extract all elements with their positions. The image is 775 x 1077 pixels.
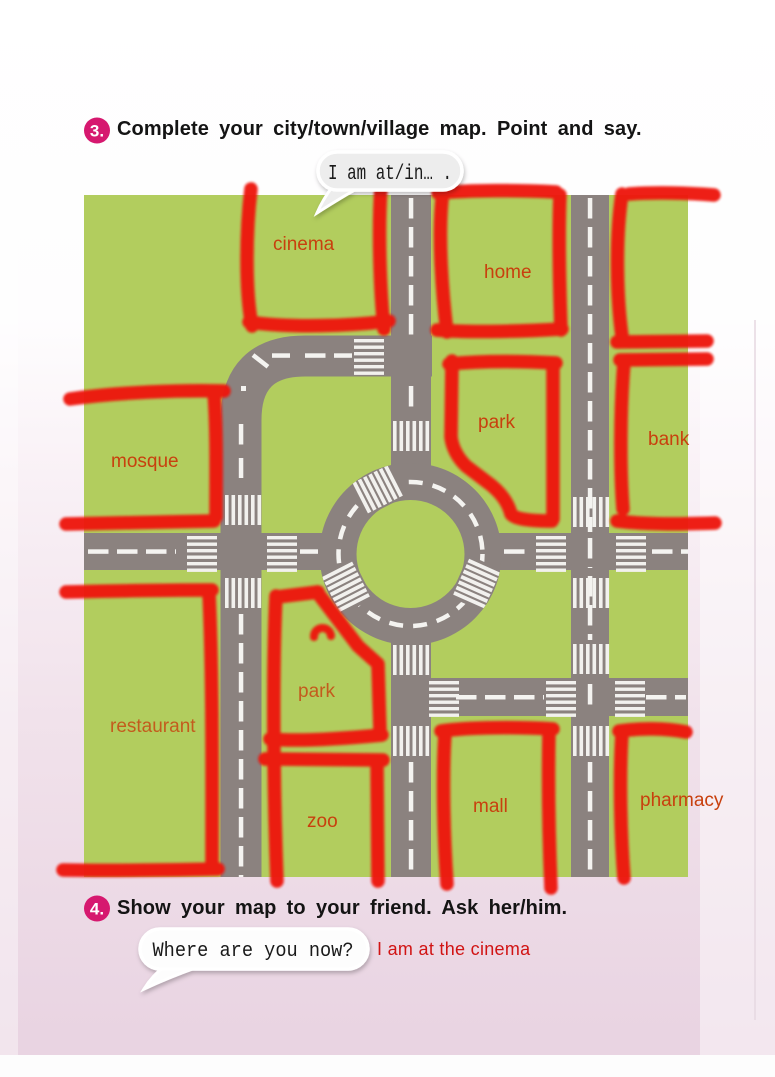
svg-text:Where are you now?: Where are you now?: [153, 940, 354, 963]
svg-text:cinema: cinema: [273, 234, 335, 255]
svg-text:pharmacy: pharmacy: [640, 790, 724, 811]
svg-text:3.: 3.: [90, 122, 104, 141]
svg-text:Show your map to your friend.: Show your map to your friend. Ask her/hi…: [117, 897, 567, 919]
svg-text:mall: mall: [473, 796, 508, 817]
svg-text:zoo: zoo: [307, 811, 338, 832]
svg-text:mosque: mosque: [111, 451, 179, 472]
svg-text:bank: bank: [648, 429, 690, 450]
svg-text:4.: 4.: [90, 900, 104, 919]
svg-text:home: home: [484, 262, 532, 283]
svg-text:restaurant: restaurant: [110, 716, 196, 737]
svg-text:Complete your city/town/villag: Complete your city/town/village map. Poi…: [117, 118, 642, 140]
svg-text:I am at the cinema: I am at the cinema: [377, 939, 531, 959]
svg-text:I am at/in… .: I am at/in… .: [328, 163, 452, 186]
svg-text:park: park: [478, 412, 515, 433]
svg-text:park: park: [298, 681, 335, 702]
